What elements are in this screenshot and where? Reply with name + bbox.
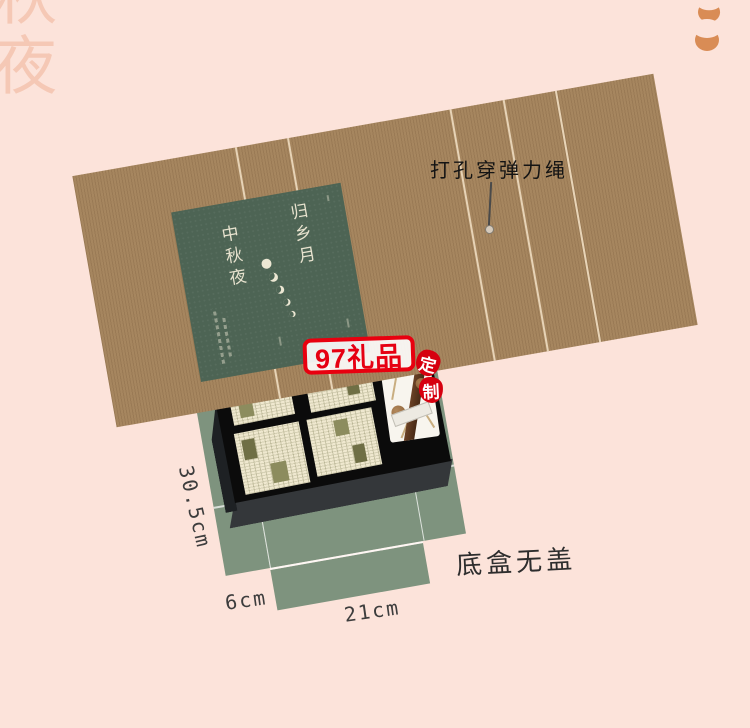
card-newspaper [306,407,382,477]
moon-phase-icon [268,272,278,282]
card-seal-block [241,438,258,460]
dried-sprig [391,378,396,400]
corner-watermark-text: 秋夜 [0,0,53,102]
card-seal-block [333,418,350,436]
label-fine-print [346,318,350,327]
moon-phase-icon [289,310,296,317]
label-fine-print [222,316,232,356]
card-seal-block [352,443,367,463]
moon-phase-shadow [268,272,275,281]
fold-crease-line [554,90,600,341]
dim-label-width: 21cm [343,595,402,627]
label-title-right: 归乡月 [287,201,315,269]
bottom-box-note: 底盒无盖 [455,539,577,582]
moon-phase-shadow [289,310,294,317]
product-mockup-canvas: 秋夜 [0,0,750,728]
fold-crease-line [502,99,548,350]
moon-carve [693,19,721,38]
punch-hole-dot [485,225,494,234]
card-seal-block [270,461,290,484]
label-fine-print [278,336,282,345]
moon-phase-icon [260,257,272,269]
label-title-left: 中秋夜 [218,223,246,291]
moon-phase-shadow [282,298,287,306]
label-fine-print [326,194,329,200]
lid-cardboard-sheet: 归乡月 中秋夜 [72,73,697,427]
moon-phase-icon [282,298,290,306]
moon-phase-shadow [275,285,281,294]
fold-crease-line [449,109,495,360]
brand-watermark: 97礼品 [302,335,415,375]
moon-phase-icon [275,285,284,294]
card-newspaper [234,421,311,494]
custom-stamp-bottom: 制 [418,376,443,403]
callout-punch-hole-label: 打孔穿弹力绳 [430,154,568,183]
